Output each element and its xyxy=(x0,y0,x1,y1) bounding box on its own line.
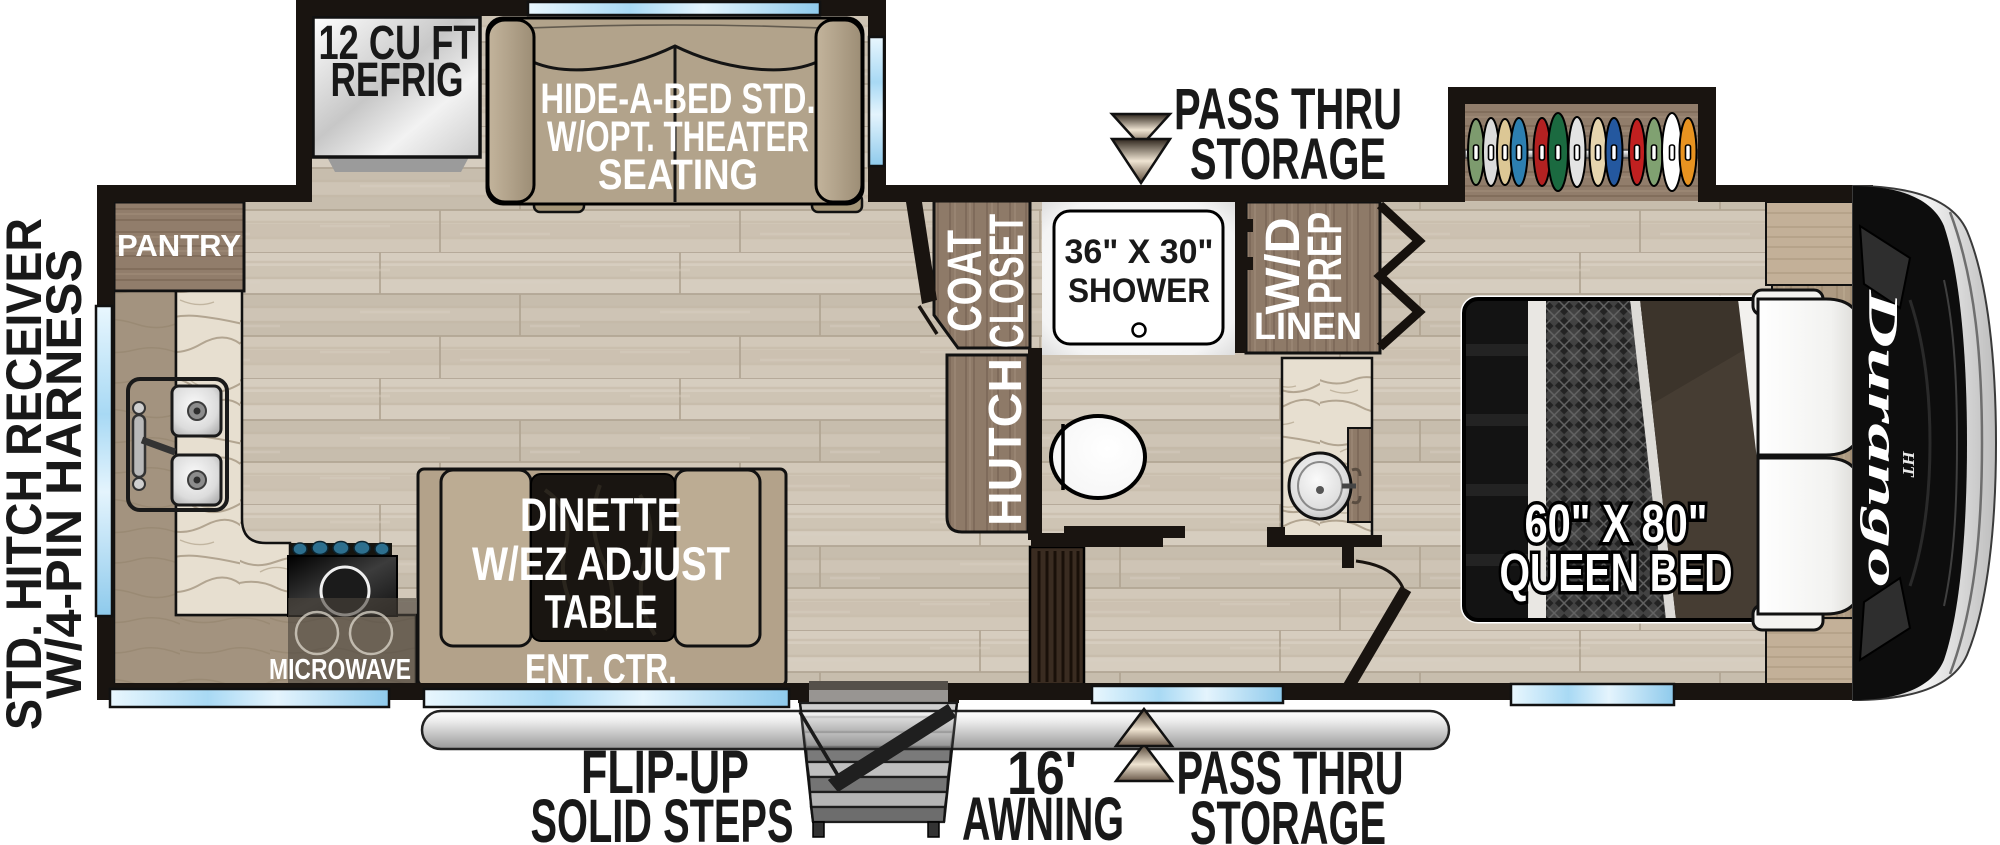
svg-text:W/EZ ADJUST: W/EZ ADJUST xyxy=(472,537,730,590)
svg-text:TABLE: TABLE xyxy=(545,585,658,638)
svg-text:QUEEN BED: QUEEN BED xyxy=(1500,543,1733,603)
svg-text:DINETTE: DINETTE xyxy=(520,488,682,541)
svg-text:SEATING: SEATING xyxy=(598,151,758,199)
svg-text:PREP: PREP xyxy=(1299,212,1352,304)
svg-text:STORAGE: STORAGE xyxy=(1190,127,1386,192)
svg-text:SOLID STEPS: SOLID STEPS xyxy=(531,787,794,845)
svg-text:STORAGE: STORAGE xyxy=(1190,789,1386,845)
svg-text:Durango: Durango xyxy=(1859,288,1905,588)
svg-text:CLOSET: CLOSET xyxy=(981,214,1034,348)
svg-text:36" X 30": 36" X 30" xyxy=(1065,233,1214,271)
svg-text:LINEN: LINEN xyxy=(1254,306,1362,348)
svg-text:REFRIG: REFRIG xyxy=(331,54,464,107)
svg-text:W/4-PIN HARNESS: W/4-PIN HARNESS xyxy=(36,249,92,699)
svg-text:MICROWAVE: MICROWAVE xyxy=(269,654,411,686)
svg-text:HUTCH: HUTCH xyxy=(979,358,1031,526)
svg-text:PANTRY: PANTRY xyxy=(117,228,241,263)
svg-text:SHOWER: SHOWER xyxy=(1068,272,1210,310)
svg-text:HT: HT xyxy=(1899,450,1918,478)
svg-text:AWNING: AWNING xyxy=(962,785,1124,845)
